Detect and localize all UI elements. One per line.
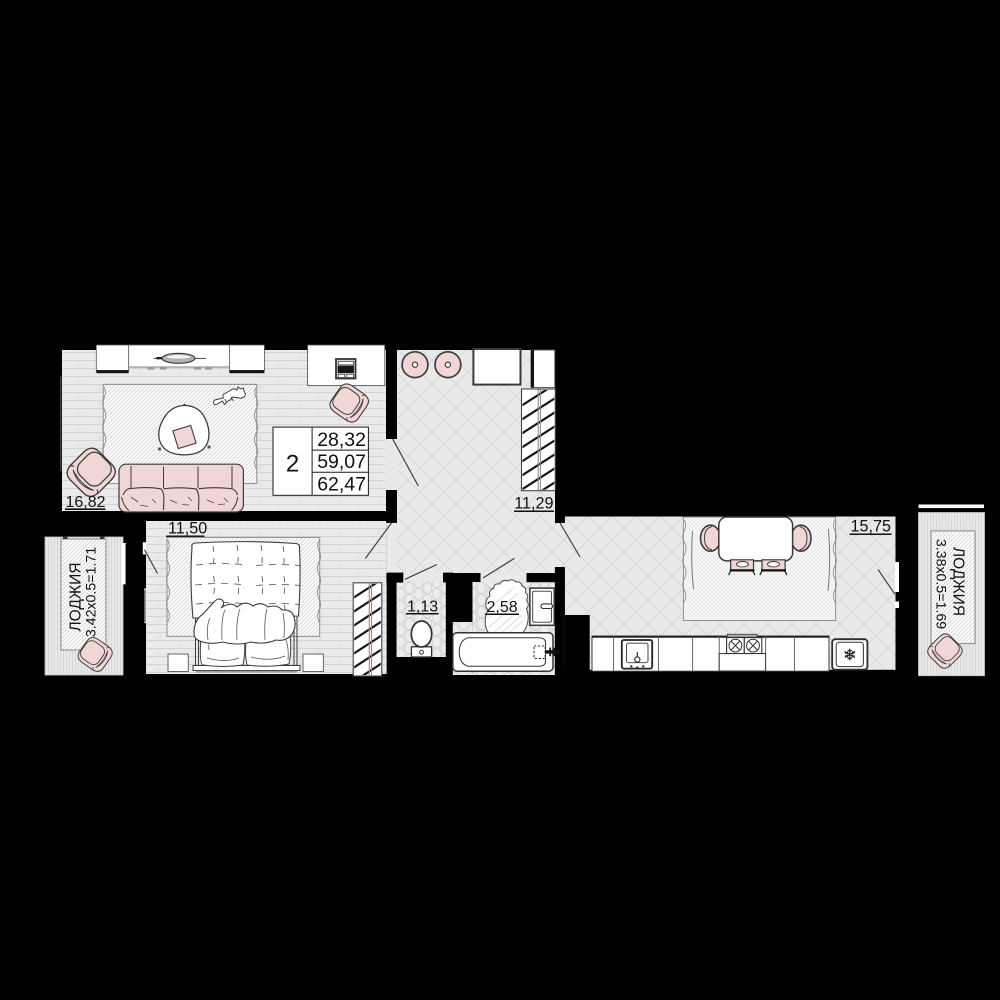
svg-text:15,75: 15,75: [850, 518, 891, 536]
svg-text:3.42х0.5=1.71: 3.42х0.5=1.71: [84, 547, 100, 637]
svg-text:3.38х0.5=1.69: 3.38х0.5=1.69: [933, 539, 949, 629]
svg-text:1,13: 1,13: [407, 599, 438, 616]
svg-text:ЛОДЖИЯ: ЛОДЖИЯ: [68, 562, 85, 631]
svg-text:2: 2: [286, 451, 299, 478]
svg-text:11,29: 11,29: [514, 495, 553, 513]
svg-text:11,50: 11,50: [168, 520, 207, 538]
svg-text:28,32: 28,32: [317, 429, 366, 451]
svg-text:2,58: 2,58: [487, 599, 518, 616]
svg-text:59,07: 59,07: [317, 451, 366, 473]
svg-text:62,47: 62,47: [317, 474, 366, 496]
svg-text:ЛОДЖИЯ: ЛОДЖИЯ: [950, 547, 967, 616]
